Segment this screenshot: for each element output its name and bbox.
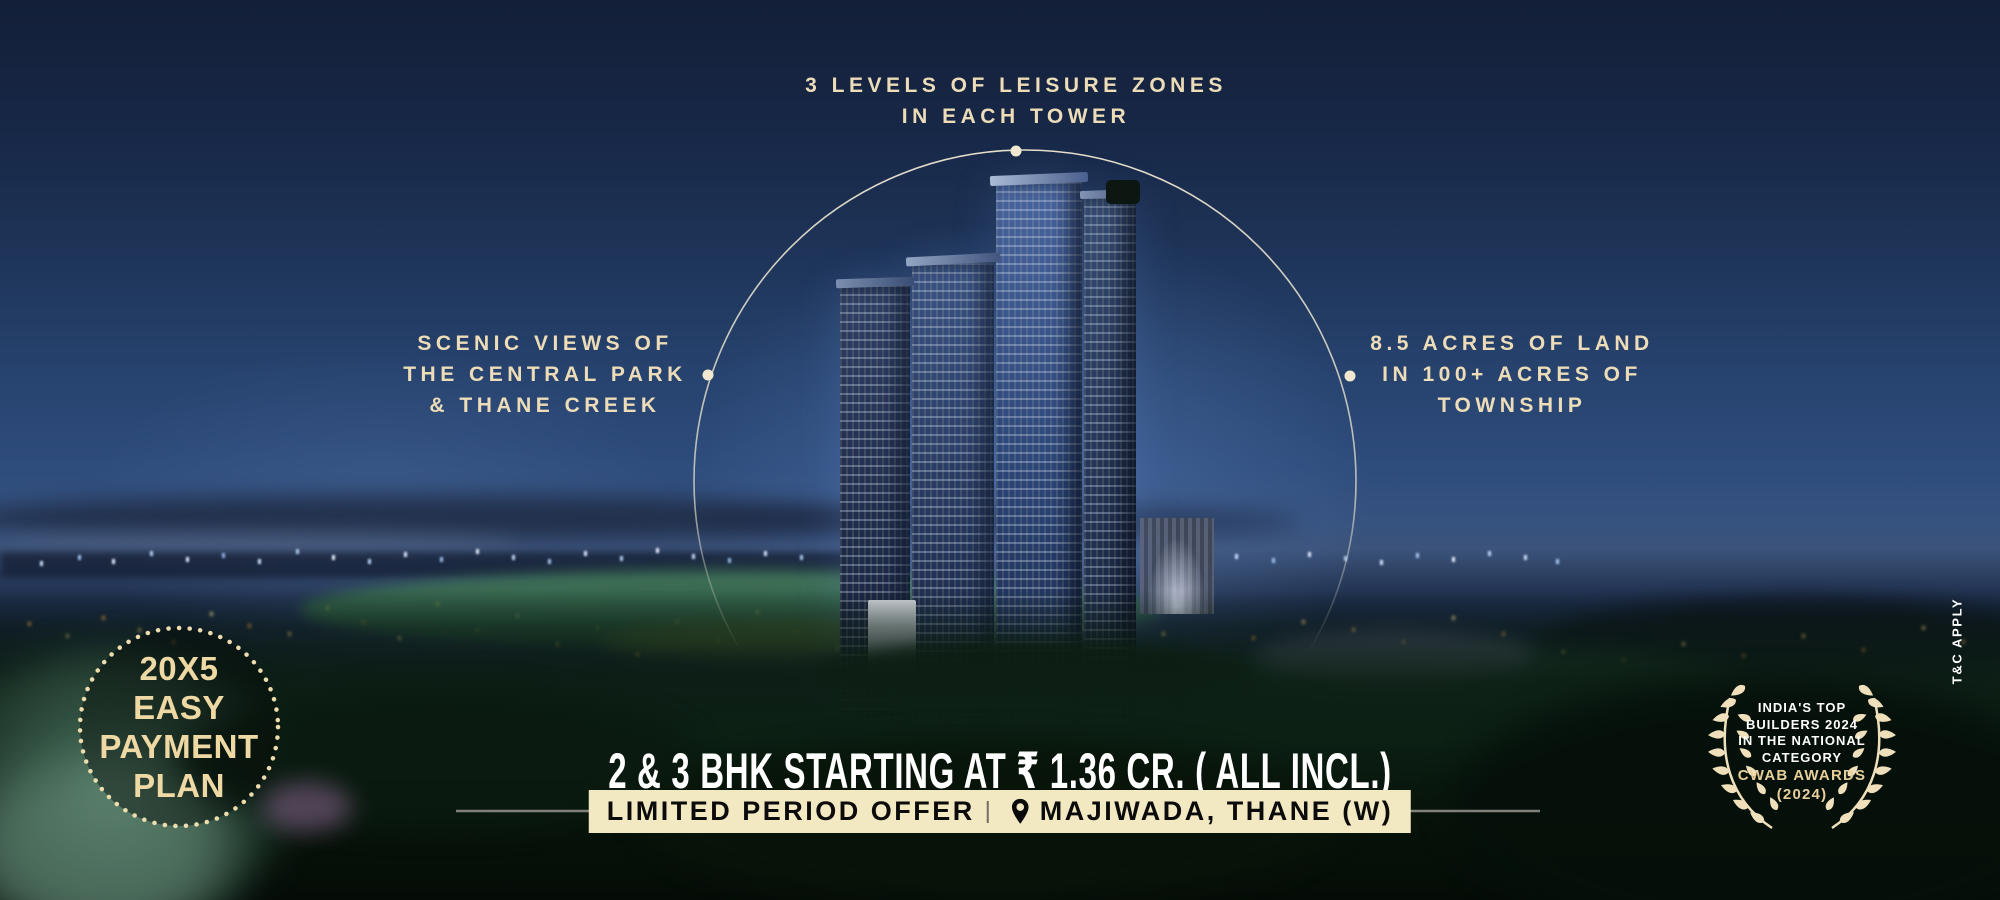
award-name: CWAB AWARDS — [1712, 767, 1892, 785]
location-text: MAJIWADA, THANE (W) — [1040, 796, 1393, 827]
feature-circle — [694, 150, 1356, 812]
divider — [987, 801, 989, 823]
offer-bar: LIMITED PERIOD OFFER MAJIWADA, THANE (W) — [589, 790, 1411, 833]
badge-line: EASY — [133, 689, 225, 726]
award-year: (2024) — [1712, 786, 1892, 804]
award-line: INDIA'S TOP — [1712, 700, 1892, 717]
connector-dot-left — [703, 370, 714, 381]
award-line: IN THE NATIONAL — [1712, 733, 1892, 750]
award-line: CATEGORY — [1712, 750, 1892, 767]
location-pin-icon — [1011, 798, 1030, 825]
connector-dot-right — [1345, 371, 1356, 382]
payment-plan-text: 20X5 EASY PAYMENT PLAN — [74, 622, 284, 832]
award-line: BUILDERS 2024 — [1712, 717, 1892, 734]
award-badge: INDIA'S TOP BUILDERS 2024 IN THE NATIONA… — [1692, 658, 1912, 838]
badge-line: PAYMENT — [99, 728, 258, 765]
payment-plan-badge: 20X5 EASY PAYMENT PLAN — [74, 622, 284, 832]
property-ad-banner: 3 LEVELS OF LEISURE ZONES IN EACH TOWER … — [0, 0, 2000, 900]
badge-line: 20X5 — [139, 650, 218, 687]
award-text: INDIA'S TOP BUILDERS 2024 IN THE NATIONA… — [1712, 700, 1892, 804]
offer-text: LIMITED PERIOD OFFER — [607, 796, 975, 827]
badge-line: PLAN — [133, 767, 225, 804]
connector-dot-top — [1011, 146, 1022, 157]
